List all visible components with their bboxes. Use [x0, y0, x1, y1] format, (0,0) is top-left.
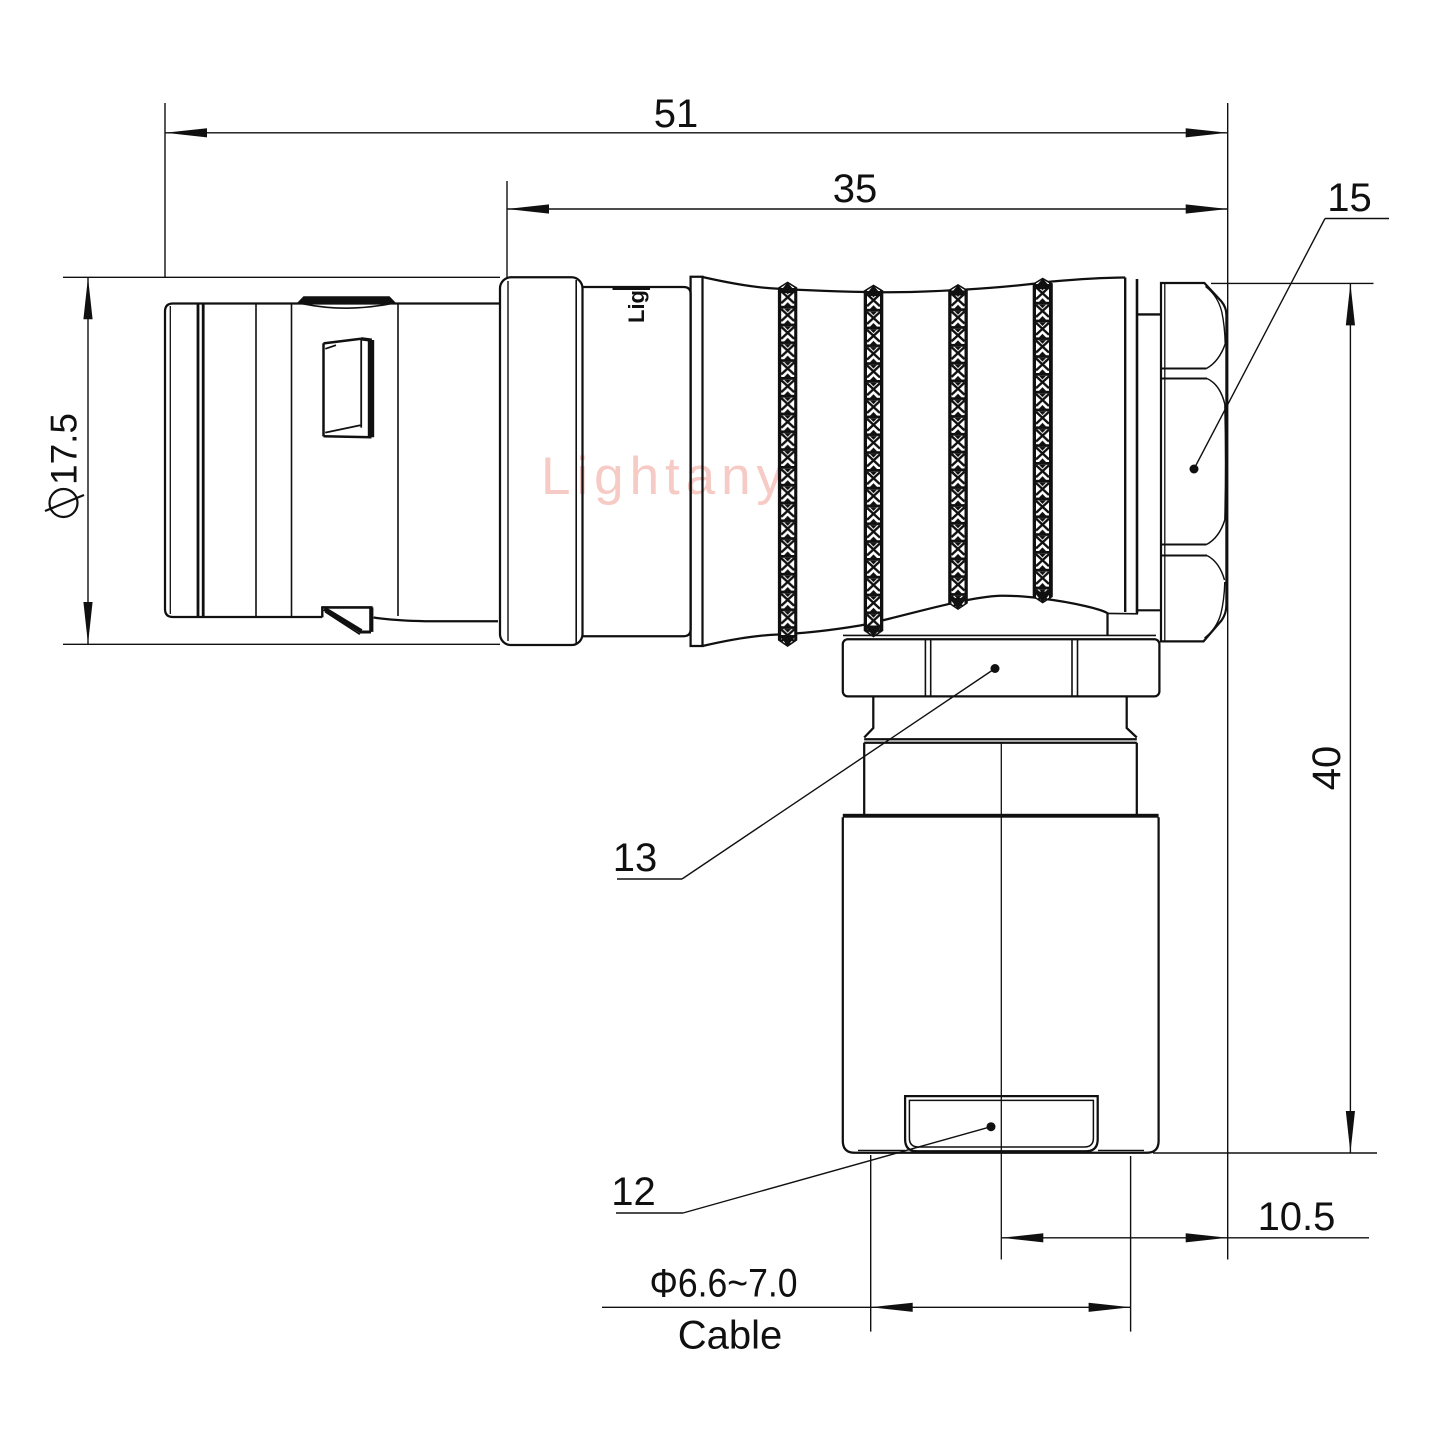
svg-text:17.5: 17.5: [44, 413, 85, 485]
svg-text:Φ6.6~7.0: Φ6.6~7.0: [650, 1262, 798, 1306]
svg-text:Cable: Cable: [678, 1314, 783, 1358]
svg-text:35: 35: [833, 167, 878, 211]
svg-text:Lightany: Lightany: [541, 447, 784, 506]
svg-text:12: 12: [611, 1170, 656, 1214]
svg-text:40: 40: [1305, 746, 1349, 791]
svg-text:15: 15: [1327, 176, 1372, 220]
svg-text:13: 13: [613, 836, 658, 880]
svg-text:10.5: 10.5: [1258, 1195, 1336, 1239]
svg-text:Lig: Lig: [624, 290, 649, 323]
svg-text:51: 51: [654, 92, 699, 136]
